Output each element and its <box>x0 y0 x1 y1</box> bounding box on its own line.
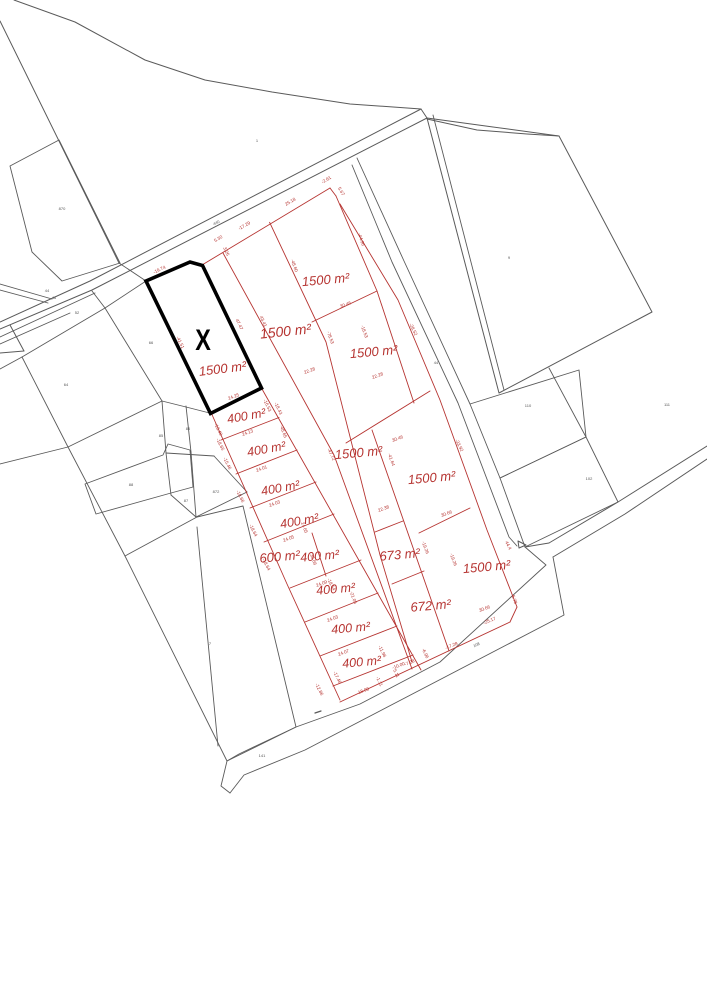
svg-text:141: 141 <box>259 753 266 758</box>
svg-text:X: X <box>195 323 211 356</box>
svg-text:88: 88 <box>129 482 134 487</box>
svg-text:86: 86 <box>186 426 191 431</box>
svg-text:44: 44 <box>434 360 439 365</box>
svg-text:110: 110 <box>525 403 532 408</box>
svg-text:870: 870 <box>59 206 66 211</box>
svg-text:52: 52 <box>75 310 80 315</box>
svg-text:111: 111 <box>664 402 671 407</box>
svg-text:85: 85 <box>159 433 164 438</box>
svg-text:46: 46 <box>52 295 57 300</box>
svg-text:64: 64 <box>64 382 69 387</box>
svg-text:87: 87 <box>184 498 189 503</box>
svg-text:44: 44 <box>45 288 50 293</box>
svg-text:102: 102 <box>586 476 593 481</box>
svg-text:66: 66 <box>149 340 154 345</box>
svg-text:872: 872 <box>213 489 220 494</box>
